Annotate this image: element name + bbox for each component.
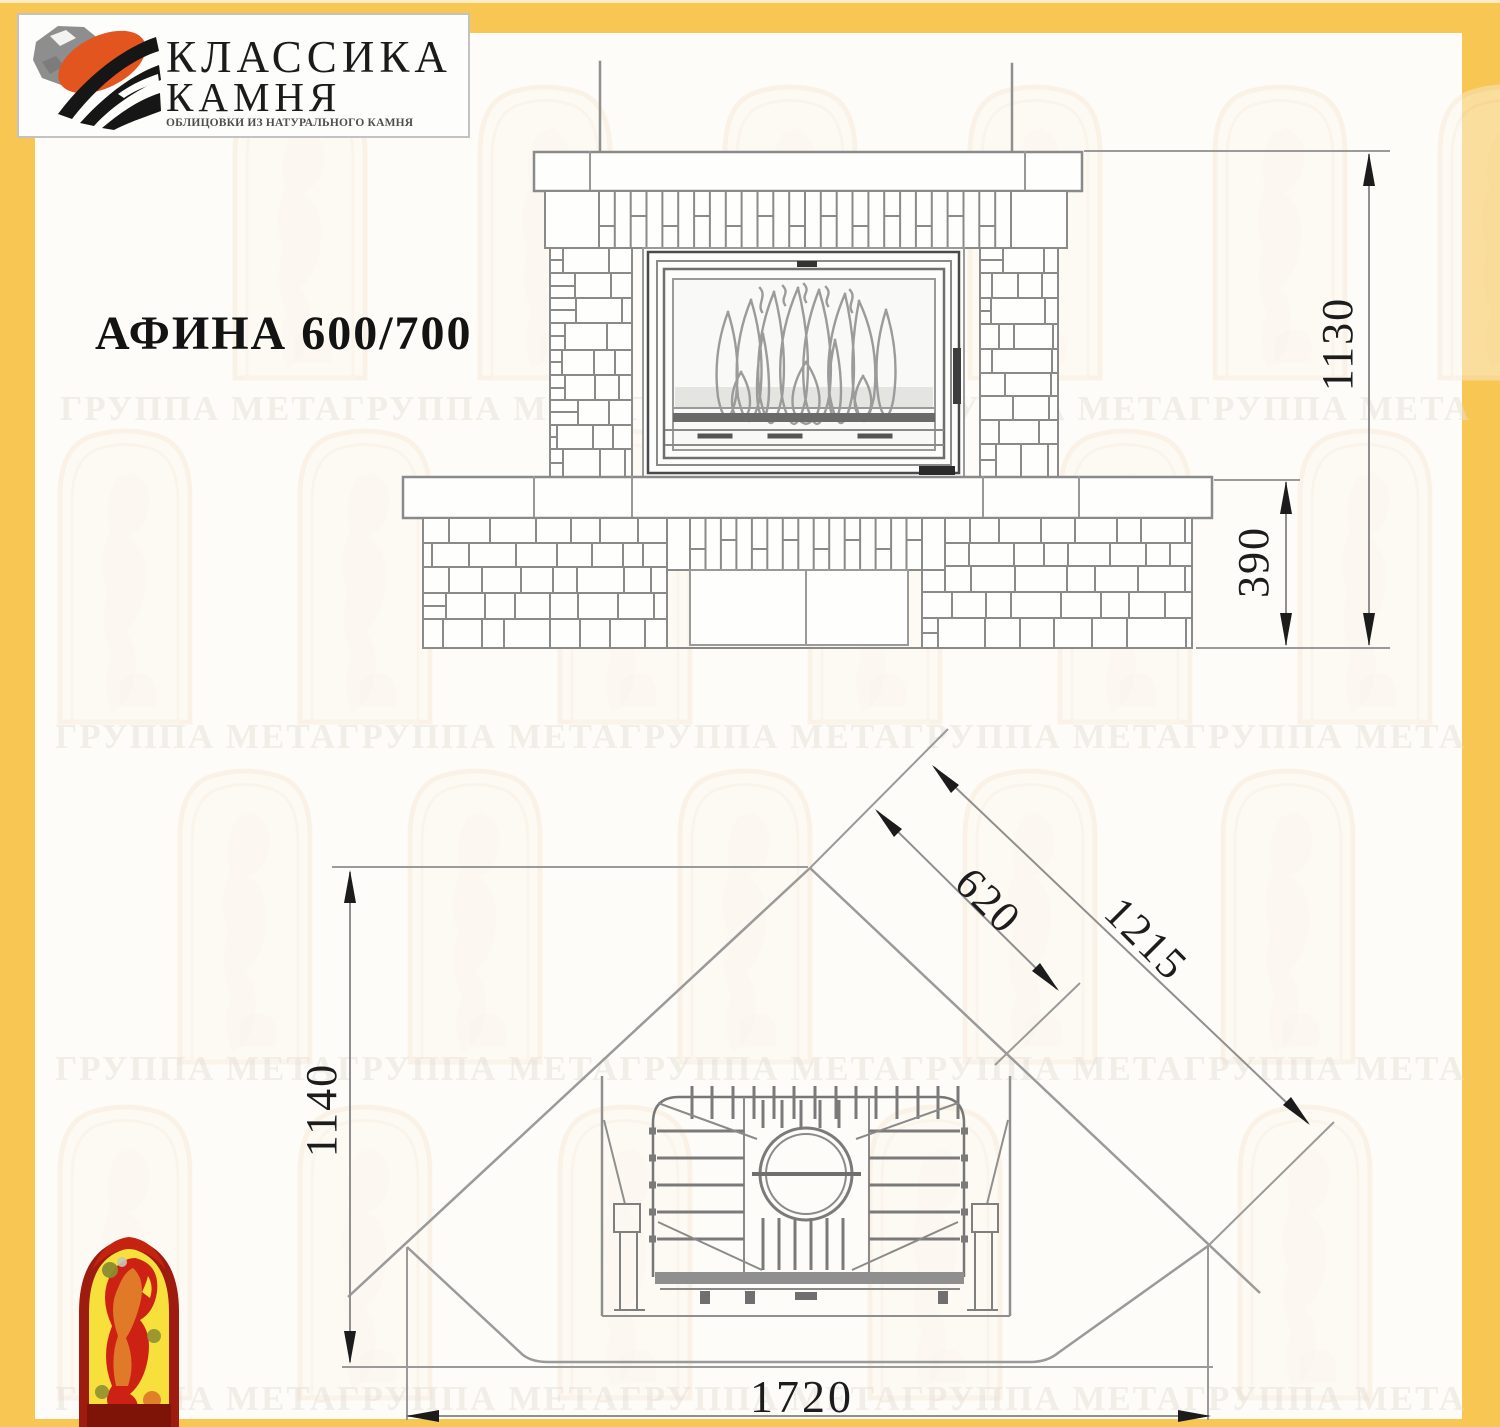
svg-text:КАМНЯ: КАМНЯ [166, 74, 341, 120]
svg-text:1720: 1720 [750, 1371, 854, 1422]
svg-text:1130: 1130 [1313, 297, 1362, 391]
svg-text:АФИНА 600/700: АФИНА 600/700 [95, 307, 473, 360]
svg-text:390: 390 [1229, 526, 1278, 598]
svg-text:1140: 1140 [297, 1063, 346, 1157]
svg-text:ОБЛИЦОВКИ ИЗ НАТУРАЛЬНОГО КАМН: ОБЛИЦОВКИ ИЗ НАТУРАЛЬНОГО КАМНЯ [166, 117, 414, 129]
